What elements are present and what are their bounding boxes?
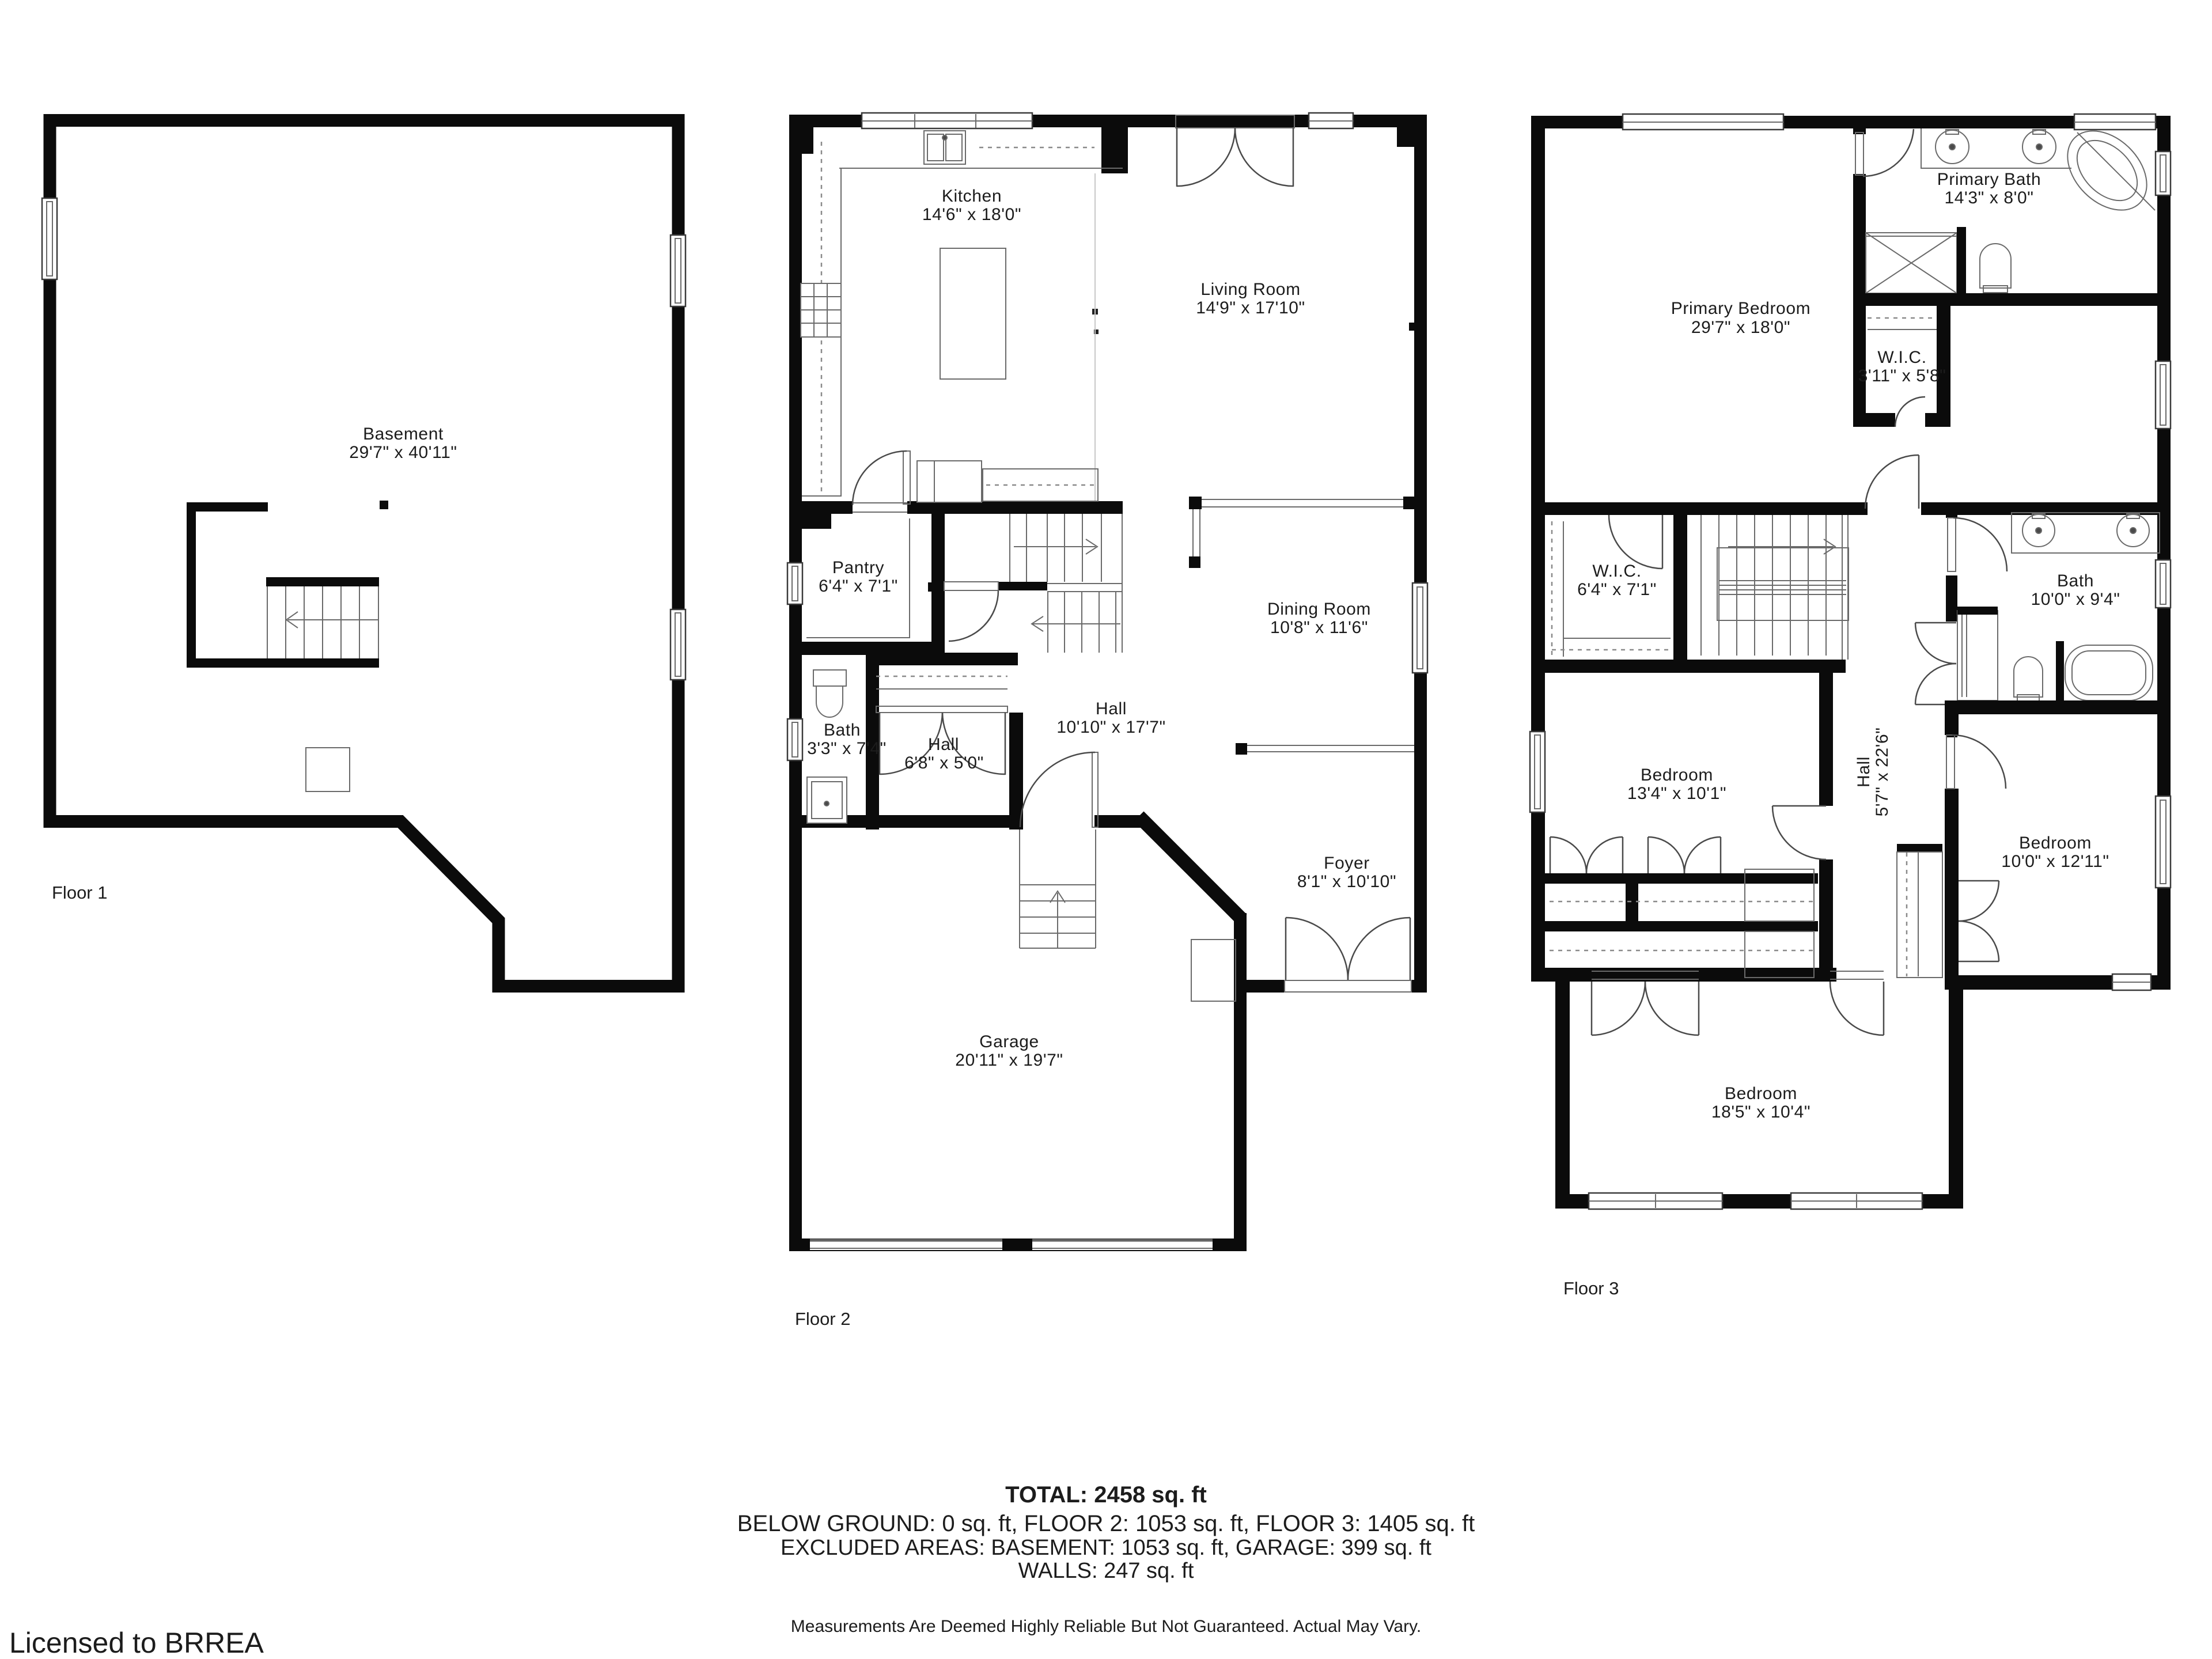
svg-text:3'11" x 5'8": 3'11" x 5'8" [1858, 366, 1946, 385]
svg-text:Basement: Basement [363, 425, 444, 444]
svg-text:W.I.C.: W.I.C. [1592, 562, 1641, 581]
svg-text:14'9" x 17'10": 14'9" x 17'10" [1196, 298, 1305, 317]
svg-text:29'7" x 40'11": 29'7" x 40'11" [349, 443, 457, 462]
svg-text:Hall: Hall [1096, 699, 1127, 718]
svg-text:Dining Room: Dining Room [1267, 600, 1371, 619]
svg-text:3'3" x 7'4": 3'3" x 7'4" [807, 739, 887, 758]
svg-text:Primary Bedroom: Primary Bedroom [1671, 299, 1810, 318]
svg-text:10'10" x 17'7": 10'10" x 17'7" [1056, 718, 1166, 737]
svg-text:TOTAL: 2458 sq. ft: TOTAL: 2458 sq. ft [1005, 1482, 1207, 1508]
svg-text:Pantry: Pantry [832, 558, 884, 577]
svg-text:Bath: Bath [824, 721, 861, 740]
svg-text:Foyer: Foyer [1324, 854, 1370, 873]
svg-text:Living Room: Living Room [1200, 280, 1300, 299]
svg-text:29'7" x 18'0": 29'7" x 18'0" [1691, 318, 1790, 337]
svg-text:Primary Bath: Primary Bath [1937, 170, 2041, 189]
svg-text:Bedroom: Bedroom [1641, 766, 1713, 785]
svg-text:8'1" x 10'10": 8'1" x 10'10" [1297, 872, 1396, 891]
svg-text:18'5" x 10'4": 18'5" x 10'4" [1711, 1103, 1810, 1122]
svg-text:20'11" x 19'7": 20'11" x 19'7" [955, 1051, 1063, 1070]
svg-text:Bedroom: Bedroom [1725, 1084, 1797, 1103]
svg-text:WALLS: 247 sq. ft: WALLS: 247 sq. ft [1018, 1559, 1194, 1583]
svg-text:6'4" x 7'1": 6'4" x 7'1" [819, 577, 898, 596]
svg-text:Floor 3: Floor 3 [1563, 1278, 1619, 1298]
svg-text:Hall: Hall [928, 735, 959, 754]
svg-text:13'4" x 10'1": 13'4" x 10'1" [1627, 784, 1726, 803]
svg-text:EXCLUDED AREAS: BASEMENT: 1053: EXCLUDED AREAS: BASEMENT: 1053 sq. ft, G… [781, 1536, 1431, 1560]
svg-text:Kitchen: Kitchen [942, 187, 1002, 206]
svg-text:Bath: Bath [2057, 571, 2094, 590]
svg-text:Hall: Hall [1854, 756, 1873, 787]
svg-text:14'3" x 8'0": 14'3" x 8'0" [1944, 188, 2033, 207]
svg-text:6'8" x 5'0": 6'8" x 5'0" [904, 753, 984, 772]
svg-text:6'4" x 7'1": 6'4" x 7'1" [1577, 580, 1657, 599]
svg-text:Licensed to BRREA: Licensed to BRREA [9, 1627, 264, 1659]
svg-text:Bedroom: Bedroom [2019, 834, 2092, 853]
svg-text:10'0" x 12'11": 10'0" x 12'11" [2001, 852, 2109, 871]
svg-text:5'7" x 22'6": 5'7" x 22'6" [1873, 727, 1892, 816]
svg-text:BELOW GROUND: 0 sq. ft, FLOOR: BELOW GROUND: 0 sq. ft, FLOOR 2: 1053 sq… [737, 1511, 1475, 1536]
svg-text:10'0" x 9'4": 10'0" x 9'4" [2031, 590, 2120, 609]
svg-text:Floor 2: Floor 2 [795, 1309, 850, 1329]
svg-text:10'8" x 11'6": 10'8" x 11'6" [1270, 618, 1368, 637]
svg-text:14'6" x 18'0": 14'6" x 18'0" [922, 205, 1021, 224]
svg-text:Measurements Are Deemed Highly: Measurements Are Deemed Highly Reliable … [791, 1617, 1421, 1636]
svg-text:W.I.C.: W.I.C. [1877, 348, 1926, 367]
svg-text:Garage: Garage [979, 1032, 1039, 1051]
svg-text:Floor 1: Floor 1 [52, 882, 107, 903]
